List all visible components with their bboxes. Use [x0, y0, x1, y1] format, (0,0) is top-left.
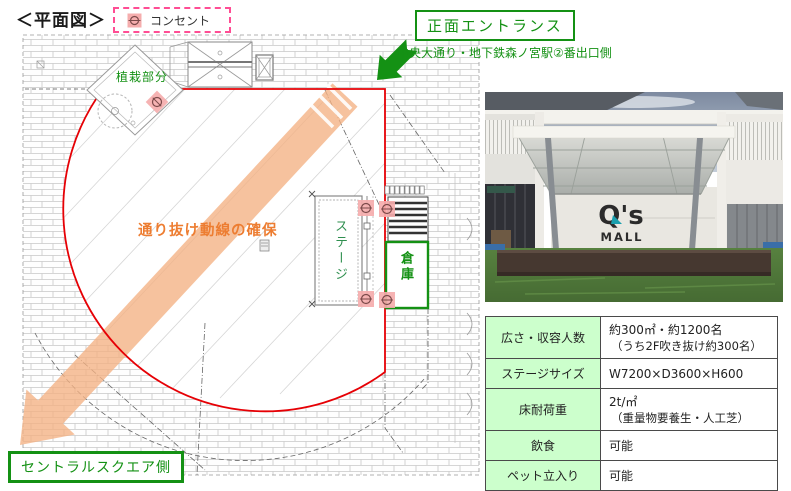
logo-mall: MALL: [601, 230, 644, 244]
photo-canopy-fascia: [513, 126, 735, 138]
table-row: ペット立入り 可能: [486, 461, 778, 491]
storage-label: 倉庫: [396, 251, 415, 283]
spec-label: ペット立入り: [486, 461, 601, 491]
outlet-icon: [358, 291, 374, 307]
spec-label: 飲食: [486, 431, 601, 461]
front-entrance-callout: 正面エントランス: [415, 10, 575, 41]
planting-label: 植栽部分: [116, 68, 168, 85]
mall-logo: Q's MALL: [598, 201, 644, 244]
spec-value: W7200×D3600×H600: [609, 367, 743, 381]
table-row: 床耐荷重 2t/㎡（重量物要養生・人工芝）: [486, 389, 778, 431]
spec-label: 床耐荷重: [486, 389, 601, 431]
flow-label: 通り抜け動線の確保: [138, 219, 278, 240]
spec-note: （重量物要養生・人工芝）: [609, 410, 769, 426]
outlet-icon: [127, 13, 142, 28]
entrance-note: 中央大通り・地下鉄森ノ宮駅②番出口側: [397, 44, 612, 61]
spec-label: 広さ・収容人数: [486, 317, 601, 359]
spec-value: 可能: [609, 469, 633, 483]
column-box: [256, 55, 273, 80]
table-row: 飲食 可能: [486, 431, 778, 461]
legend-label: コンセント: [150, 12, 210, 29]
table-row: 広さ・収容人数 約300㎡・約1200名（うち2F吹き抜け約300名）: [486, 317, 778, 359]
stage-photo: Q's MALL: [485, 92, 783, 302]
outlet-icon: [379, 292, 395, 308]
central-square-callout: セントラルスクエア側: [8, 451, 184, 483]
spec-value: 2t/㎡: [609, 395, 637, 409]
spec-label: ステージサイズ: [486, 359, 601, 389]
spec-value: 可能: [609, 439, 633, 453]
outlet-icon: [379, 201, 395, 217]
photo-awning: [487, 186, 515, 193]
spec-value: 約300㎡・約1200名: [609, 323, 722, 337]
legend-box: コンセント: [113, 7, 231, 33]
page-title: ＜平面図＞: [16, 6, 106, 31]
stage-label: ステージ: [330, 219, 349, 283]
equipment-box: [260, 240, 269, 251]
spec-table: 広さ・収容人数 約300㎡・約1200名（うち2F吹き抜け約300名） ステージ…: [485, 316, 778, 491]
logo-qs: Q's: [598, 201, 644, 231]
spec-note: （うち2F吹き抜け約300名）: [609, 338, 769, 354]
outlet-icon: [358, 200, 374, 216]
table-row: ステージサイズ W7200×D3600×H600: [486, 359, 778, 389]
